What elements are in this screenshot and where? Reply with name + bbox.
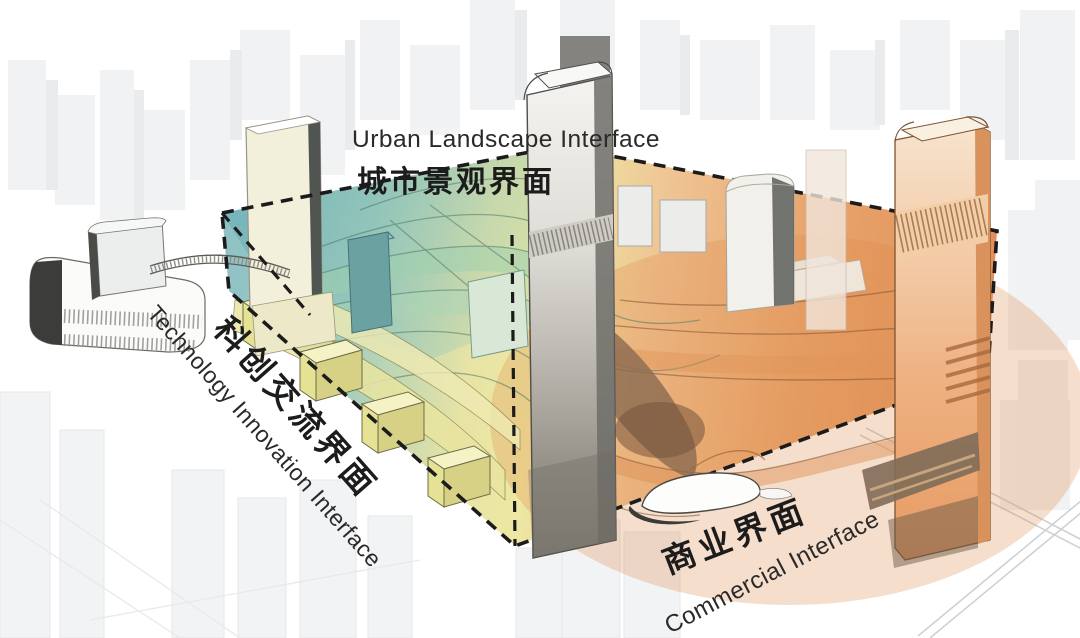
teal-slab-building — [348, 232, 394, 333]
central-tower — [524, 36, 616, 558]
urban-design-diagram: Urban Landscape Interface 城市景观界面 科创交流界面 … — [0, 0, 1080, 638]
gateway-slab-tower — [88, 218, 166, 300]
rounded-slab-tower — [726, 174, 794, 312]
urban-landscape-label-en: Urban Landscape Interface — [352, 126, 660, 153]
mid-block — [468, 270, 528, 358]
urban-landscape-label-zh: 城市景观界面 — [357, 165, 555, 199]
